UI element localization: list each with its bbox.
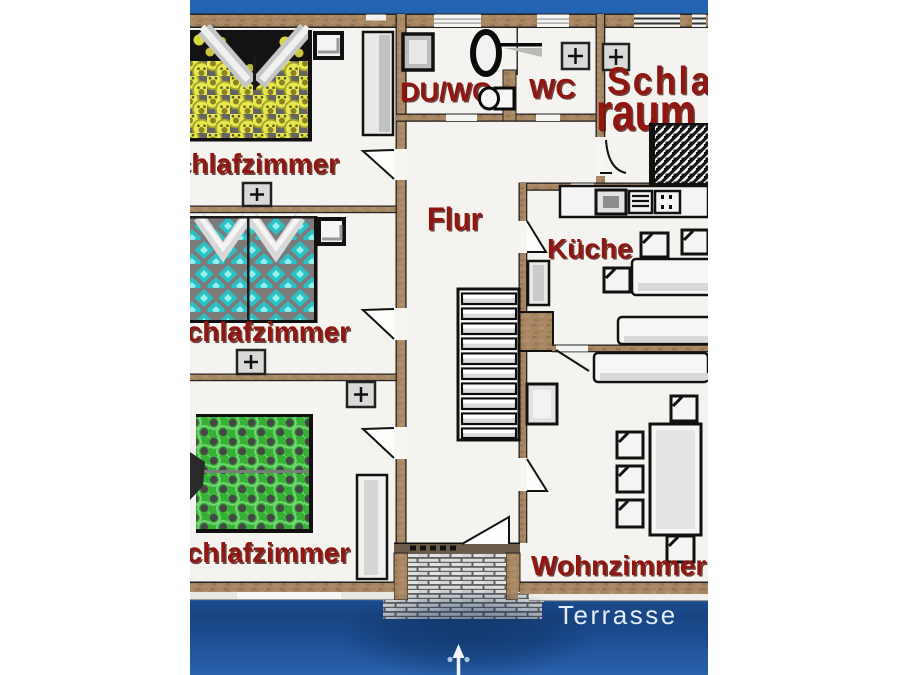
svg-text:Wohnzimmer: Wohnzimmer xyxy=(531,550,706,581)
svg-text:Flur: Flur xyxy=(427,201,482,237)
svg-text:Terrasse: Terrasse xyxy=(558,600,678,630)
svg-text:Küche: Küche xyxy=(547,233,633,264)
svg-text:DU/WC: DU/WC xyxy=(400,77,491,107)
svg-text:WC: WC xyxy=(529,73,576,104)
svg-text:Schlafzimmer: Schlafzimmer xyxy=(168,316,350,347)
svg-text:Schlafzimmer: Schlafzimmer xyxy=(168,537,350,568)
